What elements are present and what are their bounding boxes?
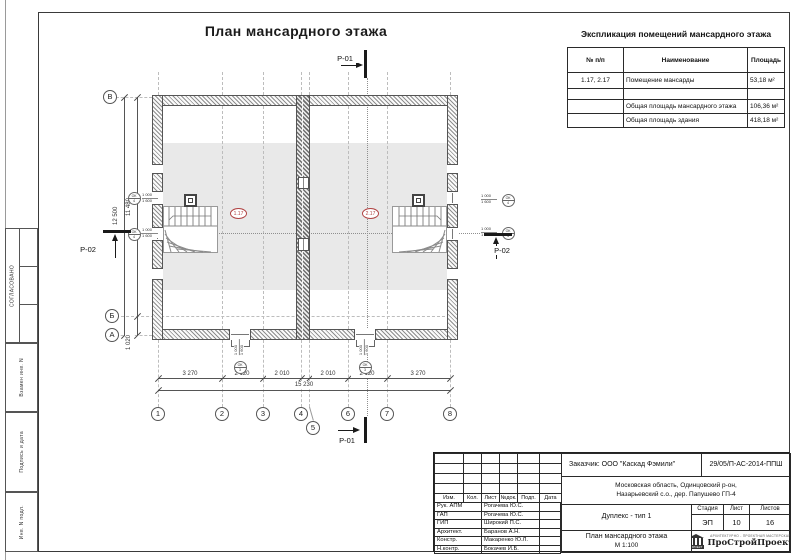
window-dims: 1 0001 600 xyxy=(359,339,369,355)
exterior-wall xyxy=(152,95,163,340)
axis-grid-line xyxy=(263,72,264,95)
section-label-p01-bottom: Р-01 xyxy=(334,436,360,445)
drawing-scale: М 1:100 xyxy=(615,542,639,550)
axis-grid-line xyxy=(450,72,451,95)
wall-opening xyxy=(152,164,163,174)
party-wall xyxy=(296,95,310,340)
axis-bubble: 1 xyxy=(151,407,165,421)
section-bar-p02-right xyxy=(484,233,512,236)
wall-opening xyxy=(152,268,163,280)
dim-label: 2 010 xyxy=(266,370,298,378)
section-bar-p01-top xyxy=(364,50,367,78)
window-glazing xyxy=(452,193,453,203)
axis-grid-line xyxy=(387,340,388,407)
axis-grid-line xyxy=(309,340,310,407)
object-name: Дуплекс - тип 1 xyxy=(602,513,652,522)
window-glazing xyxy=(231,334,249,335)
window-dims: 1 0001 600 xyxy=(142,193,158,203)
role-cell: Н.контр. xyxy=(434,545,482,555)
axis-bubble: Б xyxy=(105,309,119,323)
dim-line xyxy=(137,97,138,335)
window-tag: ОК4 xyxy=(502,194,515,207)
rt-cell: 1.17, 2.17 xyxy=(568,73,624,89)
axis-bubble: 8 xyxy=(443,407,457,421)
axis-grid-line-b xyxy=(116,316,450,317)
axis-grid-line xyxy=(387,106,388,329)
section-arrow-line xyxy=(115,240,116,258)
table-row xyxy=(568,89,785,100)
approved-label: СОГЛАСОВАНО xyxy=(6,229,19,342)
axis-grid-line xyxy=(222,72,223,95)
sign-date-label: Подпись и дата xyxy=(19,431,25,473)
exterior-wall xyxy=(447,95,458,340)
rt-cell: Помещение мансарды xyxy=(624,73,748,89)
signature-cell xyxy=(539,545,561,555)
axis-bubble: 4 xyxy=(294,407,308,421)
rt-cell: 53,18 м² xyxy=(748,73,785,89)
client-cell: Заказчик: ООО "Каскад Фэмили" xyxy=(561,453,702,477)
dim-label: 3 270 xyxy=(174,370,206,378)
rt-cell xyxy=(624,89,748,100)
axis-grid-line xyxy=(222,106,223,329)
sheet-number: 10 xyxy=(723,514,750,531)
axis-grid-line xyxy=(309,72,310,95)
client-text: Заказчик: ООО "Каскад Фэмили" xyxy=(569,461,675,470)
section-bar-p02-left xyxy=(103,230,131,233)
document-code: 29/05/П-АС-2014-ППШ xyxy=(709,461,782,470)
window-dims: 1 0001 600 xyxy=(234,339,244,355)
axis-grid-line xyxy=(348,340,349,407)
room-table-title: Экспликация помещений мансардного этажа xyxy=(563,29,789,39)
rt-cell xyxy=(568,89,624,100)
axis-grid-line xyxy=(158,340,159,407)
strip-divider xyxy=(19,229,20,342)
object-name-cell: Дуплекс - тип 1 xyxy=(561,504,692,531)
rt-cell xyxy=(568,114,624,128)
sheets-total: 16 xyxy=(749,514,791,531)
duct-divider xyxy=(303,178,304,188)
rt-cell: Общая площадь мансардного этажа xyxy=(624,100,748,114)
axis-grid-line xyxy=(348,106,349,329)
address-line: Назарьевский с.о., дер. Папушево ГП-4 xyxy=(616,491,735,499)
window-tag: ОК3 xyxy=(359,361,372,374)
rt-cell: 418,18 м² xyxy=(748,114,785,128)
logo-name: ПроСтройПроект xyxy=(707,538,791,549)
section-label-p01-top: Р-01 xyxy=(332,54,358,63)
party-wall-seam xyxy=(302,96,303,339)
replace-inv-label: Взамен инв. N xyxy=(19,358,25,397)
wall-opening xyxy=(447,268,458,280)
dim-line xyxy=(158,378,450,379)
stage-value: ЭП xyxy=(691,514,724,531)
page-title: План мансардного этажа xyxy=(150,23,442,39)
strip-sign-date: Подпись и дата xyxy=(5,412,38,492)
address-line: Московская область, Одинцовский р-он, xyxy=(615,482,737,490)
rt-header-num: № п/п xyxy=(568,48,624,73)
rt-header-area: Площадь xyxy=(748,48,785,73)
room-table: № п/п Наименование Площадь 1.17, 2.17 По… xyxy=(567,47,785,128)
axis-bubble: 2 xyxy=(215,407,229,421)
axis-grid-line-v xyxy=(116,97,152,98)
rt-cell xyxy=(568,100,624,114)
logo-text-group: АРХИТЕКТУРНО - ПРОЕКТНАЯ МАСТЕРСКАЯ ПроС… xyxy=(707,534,791,549)
axis-grid-line xyxy=(301,340,302,407)
rt-cell: Общая площадь здания xyxy=(624,114,748,128)
address-cell: Московская область, Одинцовский р-он, На… xyxy=(561,476,791,505)
logo-icon-text: ПРОЕКТ xyxy=(691,545,704,549)
dim-label: 3 270 xyxy=(402,370,434,378)
window-glazing xyxy=(452,229,453,239)
table-row: Общая площадь мансардного этажа 106,36 м… xyxy=(568,100,785,114)
room-tag: 1.17 xyxy=(230,208,247,219)
axis-grid-line-a xyxy=(116,335,152,336)
section-bar-p01-bottom xyxy=(364,417,367,443)
document-code-cell: 29/05/П-АС-2014-ППШ xyxy=(701,453,791,477)
axis-bubble: А xyxy=(105,328,119,342)
logo-columns xyxy=(691,538,703,545)
strip-approved: СОГЛАСОВАНО xyxy=(5,228,38,343)
drawing-sheet: СОГЛАСОВАНО Взамен инв. N Подпись и дата… xyxy=(0,0,800,560)
axis-grid-line xyxy=(158,72,159,95)
dim-label-height: 1 020 xyxy=(125,324,134,360)
wall-opening xyxy=(447,164,458,174)
window-tag: ОК4 xyxy=(128,192,141,205)
rt-cell xyxy=(748,89,785,100)
strip-divider xyxy=(19,266,37,267)
strip-replace-inv: Взамен инв. N xyxy=(5,343,38,412)
axis-grid-line xyxy=(263,340,264,407)
strip-inv-num: Инв. N подл. xyxy=(5,492,38,552)
window-dims: 1 0001 600 xyxy=(142,228,158,238)
logo-building-icon: ПРОЕКТ xyxy=(691,534,704,549)
axis-grid-line xyxy=(387,72,388,95)
title-block: Заказчик: ООО "Каскад Фэмили" 29/05/П-АС… xyxy=(433,452,790,552)
section-label-p02-right: Р-02 xyxy=(488,246,516,255)
axis-grid-line xyxy=(348,72,349,95)
axis-bubble: 3 xyxy=(256,407,270,421)
section-label-p02-left: Р-02 xyxy=(74,245,102,254)
logo-cell: ПРОЕКТ АРХИТЕКТУРНО - ПРОЕКТНАЯ МАСТЕРСК… xyxy=(691,530,791,553)
axis-bubble: 6 xyxy=(341,407,355,421)
dim-line xyxy=(158,390,450,391)
window-dims: 1 0001 600 xyxy=(481,194,497,204)
axis-grid-line xyxy=(301,72,302,95)
rt-cell: 106,36 м² xyxy=(748,100,785,114)
stair-right xyxy=(392,206,447,253)
inv-num-label: Инв. N подл. xyxy=(19,505,25,539)
table-row: Общая площадь здания 418,18 м² xyxy=(568,114,785,128)
axis-grid-line xyxy=(222,340,223,407)
drawing-name-cell: План мансардного этажа М 1:100 xyxy=(561,530,692,553)
stair-left xyxy=(163,206,218,253)
axis-grid-line xyxy=(450,340,451,407)
strip-divider xyxy=(19,304,37,305)
window-glazing xyxy=(356,334,374,335)
table-row: 1.17, 2.17 Помещение мансарды 53,18 м² xyxy=(568,73,785,89)
room-tag: 2.17 xyxy=(362,208,379,219)
section-arrowhead xyxy=(353,427,360,433)
dim-label-total: 15 230 xyxy=(288,381,320,389)
room-table-header-row: № п/п Наименование Площадь xyxy=(568,48,785,73)
dim-label: 2 010 xyxy=(312,370,344,378)
axis-grid-line xyxy=(263,106,264,329)
axis-bubble: 7 xyxy=(380,407,394,421)
window-tag: ОК3 xyxy=(234,361,247,374)
rt-header-name: Наименование xyxy=(624,48,748,73)
flue-symbol-inner xyxy=(188,198,193,203)
axis-bubble: В xyxy=(103,90,117,104)
flue-symbol-inner xyxy=(416,198,421,203)
person-name-cell: Бокачев И.Б. xyxy=(481,545,540,555)
drawing-name: План мансардного этажа xyxy=(586,533,668,542)
axis-bubble: 5 xyxy=(306,421,320,435)
duct-divider xyxy=(303,239,304,250)
